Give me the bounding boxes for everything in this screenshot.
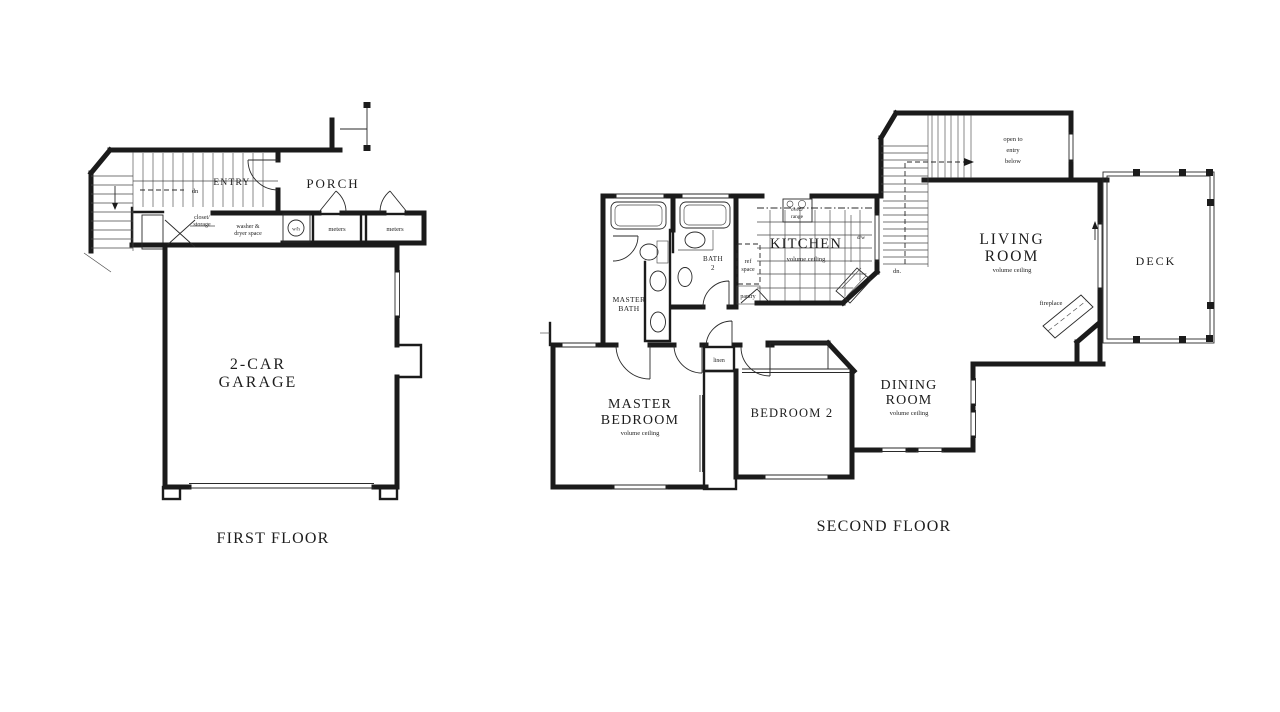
- bath2-tub: [680, 202, 730, 228]
- corner-stove: [836, 268, 871, 303]
- master-sink: [640, 244, 658, 260]
- label-dining-line2: ROOM: [886, 393, 933, 408]
- label-ref-line1: ref: [745, 258, 752, 265]
- master-top-window: [560, 343, 598, 347]
- label-master-bath-line2: BATH: [618, 304, 639, 313]
- suite-hall-door-swing: [674, 345, 702, 373]
- label-dn-first: dn: [192, 188, 199, 195]
- lower-stair-treads: [883, 115, 928, 267]
- label-closet-line2: storage: [193, 222, 211, 228]
- porch-door-swing-right: [380, 191, 407, 212]
- label-kitchen: KITCHEN: [770, 236, 842, 252]
- master-wardrobe: [704, 371, 736, 489]
- label-oven-line1: oven/: [791, 207, 804, 213]
- garage-door-line: [189, 484, 374, 489]
- stair-walk-line-second: [905, 162, 964, 264]
- bedroom2-closet-hatch: [770, 343, 828, 369]
- master-bedroom-door-swing: [616, 345, 650, 379]
- label-garage-line1: 2-CAR: [230, 356, 286, 373]
- label-dining-ceiling: volume ceiling: [890, 410, 930, 417]
- floor-plan-page: ENTRY dn closet/ storage washer & dryer …: [0, 0, 1280, 712]
- label-pantry: pantry: [740, 294, 755, 300]
- label-living-line2: ROOM: [985, 248, 1040, 265]
- label-washer-line1: washer &: [236, 224, 259, 230]
- label-linen: linen: [713, 358, 725, 364]
- label-entry: ENTRY: [213, 178, 250, 188]
- master-bath-door-swing: [613, 236, 638, 261]
- label-meters-left: meters: [328, 226, 346, 233]
- label-open-entry-line3: below: [1005, 158, 1021, 165]
- toilet-2: [651, 312, 666, 332]
- label-kitchen-ceiling: volume ceiling: [787, 256, 827, 263]
- label-master-bedroom-line1: MASTER: [608, 397, 672, 412]
- label-water-heater: w/h: [292, 227, 300, 233]
- bath2-sink: [685, 232, 705, 248]
- label-open-entry-line2: entry: [1006, 147, 1020, 154]
- label-master-bedroom-line2: BEDROOM: [601, 413, 679, 428]
- porch-door-swing-left: [319, 191, 346, 212]
- label-dining-line1: DINING: [881, 378, 938, 393]
- gate-post-bottom: [364, 145, 371, 151]
- label-garage-line2: GARAGE: [219, 374, 298, 391]
- label-closet-line1: closet/: [194, 215, 210, 221]
- bedroom2-window: [763, 475, 830, 479]
- site-line: [84, 253, 111, 272]
- closet-stub-wall: [132, 208, 163, 245]
- label-dn-second: dn.: [893, 268, 902, 275]
- label-open-entry-line1: open to: [1003, 136, 1022, 143]
- kitchen-pass-through: [875, 213, 879, 262]
- second-floor-plan: MASTER BATH BATH 2 ref space pantry line…: [540, 113, 1214, 535]
- label-deck: DECK: [1136, 254, 1177, 268]
- label-porch: PORCH: [306, 176, 359, 191]
- first-floor-plan: ENTRY dn closet/ storage washer & dryer …: [84, 102, 424, 547]
- garage-niche: [397, 345, 421, 377]
- label-living-ceiling: volume ceiling: [993, 267, 1033, 274]
- living-deck-slider: [1098, 222, 1102, 290]
- master-bedroom-window: [612, 485, 668, 489]
- slider-arrowhead: [1092, 221, 1098, 229]
- master-vanity: [657, 241, 668, 263]
- gate-post-top: [364, 102, 371, 108]
- label-living-line1: LIVING: [979, 231, 1044, 248]
- linen-door-swing: [706, 321, 732, 347]
- wc-compartment-walls: [645, 230, 673, 341]
- bath2-door-swing: [703, 281, 729, 307]
- bath2-counter: [678, 230, 713, 250]
- bath2-toilet: [678, 268, 692, 287]
- second-floor-title: SECOND FLOOR: [817, 518, 952, 535]
- wardrobe-mirror-door: [700, 395, 703, 472]
- bedroom2-closet-doors: [742, 369, 850, 373]
- label-bath2-line2: 2: [711, 264, 715, 272]
- master-tub: [611, 202, 666, 229]
- label-meters-right: meters: [386, 226, 404, 233]
- label-master-ceiling: volume ceiling: [621, 430, 661, 437]
- winder-stair-treads: [91, 176, 133, 248]
- walk-line-arrowhead: [964, 158, 974, 166]
- label-bedroom2: BEDROOM 2: [751, 406, 834, 420]
- stair-down-arrowhead: [112, 203, 118, 210]
- garage-window: [395, 270, 400, 318]
- stair-block-window: [1069, 132, 1073, 162]
- label-washer-line2: dryer space: [234, 231, 262, 237]
- label-ref-line2: space: [741, 267, 755, 273]
- winder-treads-second: [881, 146, 928, 192]
- upper-stair-treads: [932, 115, 971, 178]
- bath2-tub-inner: [684, 205, 726, 225]
- floor-plan-drawing: ENTRY dn closet/ storage washer & dryer …: [0, 0, 1280, 712]
- master-tub-inner: [615, 205, 662, 226]
- label-bath2-line1: BATH: [703, 255, 723, 263]
- gate-symbol: [340, 104, 367, 150]
- label-dishwasher: d/w: [857, 235, 865, 241]
- label-oven-line2: range: [791, 214, 804, 220]
- first-floor-title: FIRST FLOOR: [217, 530, 330, 547]
- label-master-bath-line1: MASTER: [613, 295, 646, 304]
- toilet-1: [650, 271, 666, 291]
- label-fireplace: fireplace: [1040, 300, 1063, 307]
- bedroom2-door-swing: [741, 347, 770, 376]
